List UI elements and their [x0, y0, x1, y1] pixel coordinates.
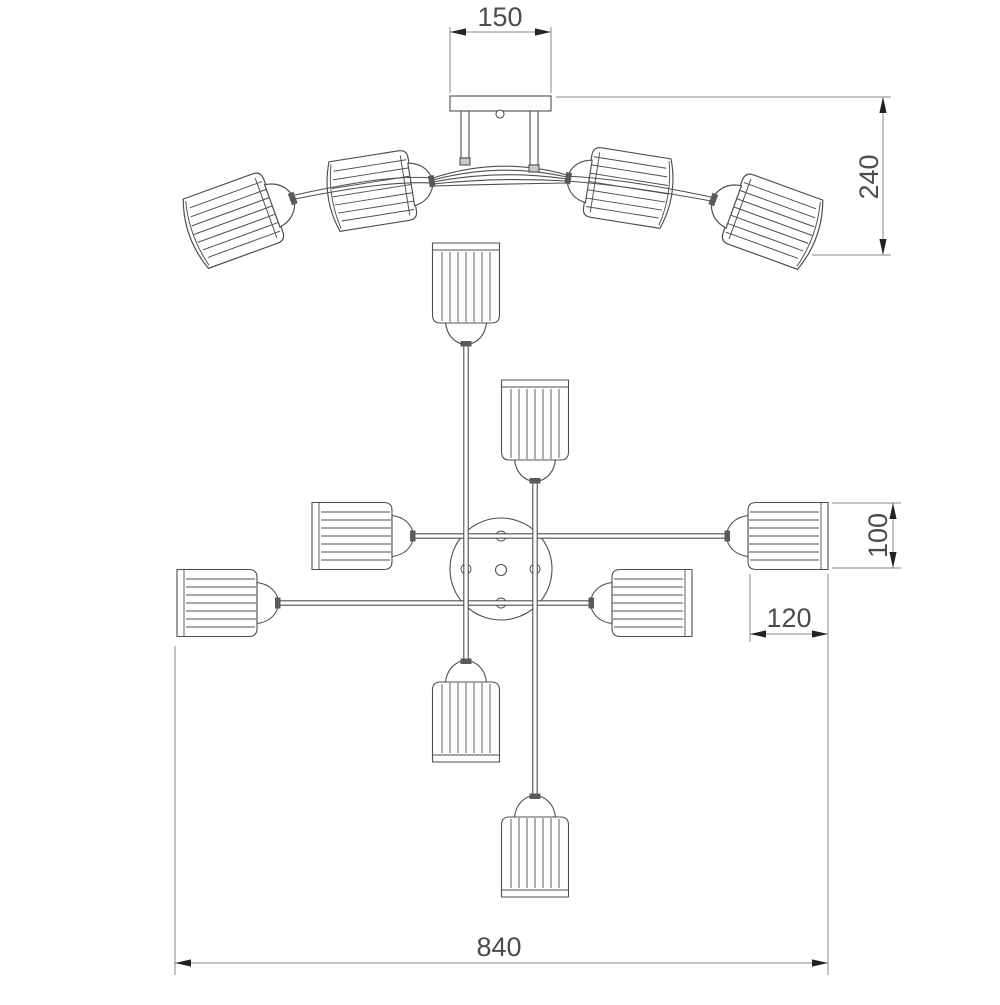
shade-plan-top-2 [502, 380, 569, 484]
dimension-100: 100 [832, 503, 901, 568]
ceiling-plate [450, 96, 551, 111]
shade-elevation-mid-left [323, 146, 440, 232]
dimension-label-240: 240 [854, 154, 884, 199]
arm-right-vertical [533, 482, 537, 795]
arrowhead-right [535, 28, 551, 35]
right-post [530, 111, 538, 165]
shade-plan-top-1 [433, 243, 500, 347]
arrowhead-left [450, 28, 466, 35]
shade-plan-right-upper [725, 503, 829, 570]
front-elevation-view: 150 240 [177, 2, 891, 272]
right-post-cap [529, 165, 539, 172]
shade-plan-left-upper [312, 503, 416, 570]
dimension-120: 120 [750, 574, 828, 642]
arrowhead-up [879, 97, 886, 113]
dimension-150: 150 [450, 2, 551, 93]
arrowhead-left [750, 630, 766, 637]
shade-elevation-far-left [177, 163, 308, 271]
arrowhead-right [812, 630, 828, 637]
arrowhead-down [879, 239, 886, 255]
chandelier-technical-drawing: 150 240 [0, 0, 1000, 1000]
arrowhead-left [175, 959, 191, 966]
plan-view: 100 120 840 [175, 243, 901, 975]
plate-screw-hole [496, 110, 504, 118]
ceiling-plate-assembly [450, 96, 551, 172]
arm-upper-horizontal [414, 534, 726, 538]
shade-elevation-far-right [698, 164, 829, 272]
dimension-840: 840 [175, 574, 828, 975]
left-post-cap [460, 158, 470, 165]
dimension-label-150: 150 [477, 2, 522, 32]
dimension-label-100: 100 [863, 513, 893, 558]
dimension-label-120: 120 [766, 603, 811, 633]
shade-plan-left-lower [177, 570, 281, 637]
canopy-center-hole [496, 565, 507, 576]
shade-plan-right-lower [589, 570, 693, 637]
arm-left-vertical [464, 345, 468, 660]
shade-plan-bottom-2 [502, 794, 569, 898]
shade-plan-bottom-1 [433, 659, 500, 763]
arrowhead-right [812, 959, 828, 966]
arm-lower-horizontal [279, 601, 590, 605]
drawing-canvas: 150 240 [0, 0, 1000, 1000]
left-post [461, 111, 469, 158]
dimension-label-840: 840 [476, 932, 521, 962]
